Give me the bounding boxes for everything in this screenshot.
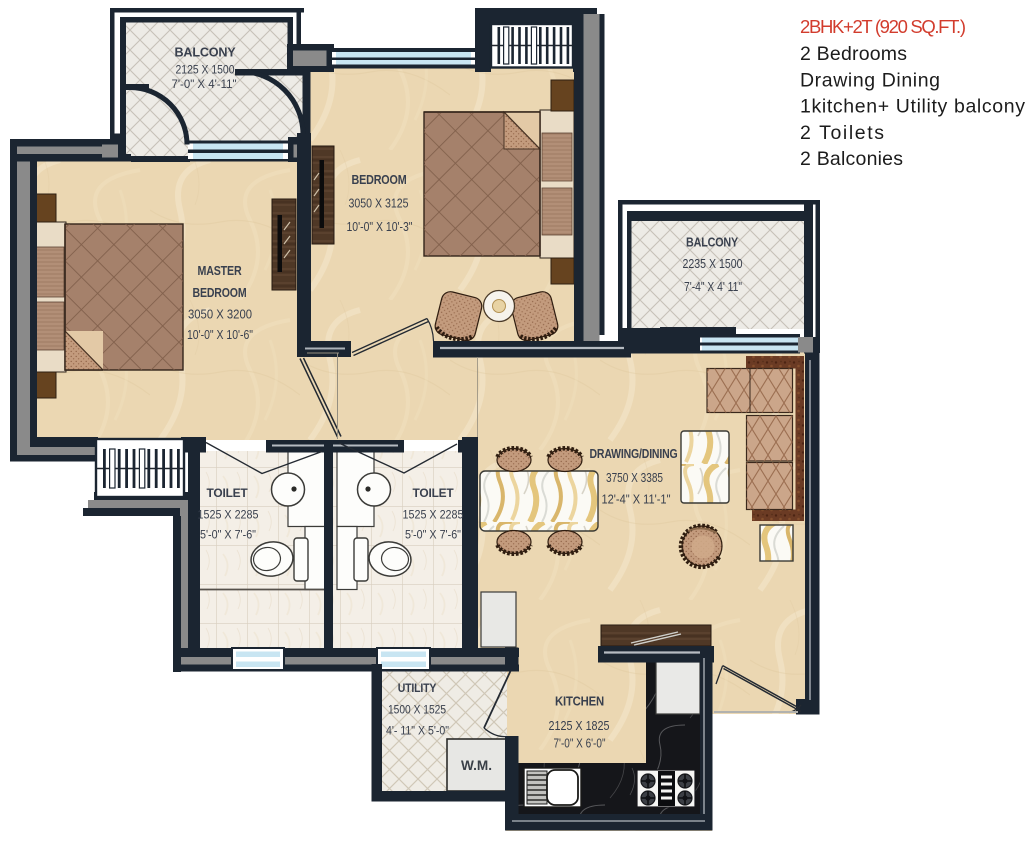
svg-text:BEDROOM: BEDROOM [193,285,247,300]
svg-text:2 Bedrooms: 2 Bedrooms [800,43,907,65]
svg-text:5'-0" X 7'-6": 5'-0" X 7'-6" [200,528,256,542]
svg-text:2235 X 1500: 2235 X 1500 [683,257,743,271]
svg-text:TOILET: TOILET [207,486,249,500]
svg-text:W.M.: W.M. [461,758,492,773]
svg-text:DRAWING/DINING: DRAWING/DINING [590,447,678,461]
svg-text:BALCONY: BALCONY [686,235,738,250]
svg-text:BALCONY: BALCONY [175,45,236,60]
svg-text:2 Balconies: 2 Balconies [800,148,903,170]
svg-text:1525 X 2285: 1525 X 2285 [403,508,464,522]
svg-text:4'- 11" X 5'-0": 4'- 11" X 5'-0" [386,724,449,738]
svg-text:12'-4" X 11'-1": 12'-4" X 11'-1" [602,493,671,507]
svg-text:Drawing Dining: Drawing Dining [800,70,940,92]
svg-text:3750 X 3385: 3750 X 3385 [606,471,663,485]
svg-text:10'-0" X 10'-3": 10'-0" X 10'-3" [347,220,413,234]
svg-text:MASTER: MASTER [198,263,243,278]
svg-text:7'-0" X 4'-11": 7'-0" X 4'-11" [172,77,237,91]
svg-text:1525 X 2285: 1525 X 2285 [198,508,259,522]
svg-text:5'-0" X 7'-6": 5'-0" X 7'-6" [405,528,461,542]
svg-text:UTILITY: UTILITY [398,681,437,695]
svg-text:3050 X 3200: 3050 X 3200 [188,308,252,322]
svg-text:TOILET: TOILET [413,486,455,500]
svg-text:2BHK+2T (920 SQ.FT.): 2BHK+2T (920 SQ.FT.) [800,16,966,37]
svg-text:1kitchen+ Utility balcony: 1kitchen+ Utility balcony [800,96,1025,118]
svg-text:KITCHEN: KITCHEN [555,695,604,709]
svg-text:1500 X 1525: 1500 X 1525 [388,703,446,717]
svg-text:2125 X 1825: 2125 X 1825 [549,719,610,733]
svg-text:2125 X 1500: 2125 X 1500 [176,63,235,77]
svg-text:10'-0" X 10'-6": 10'-0" X 10'-6" [187,328,253,342]
svg-text:2 Toilets: 2 Toilets [800,122,884,144]
svg-text:7'-0" X 6'-0": 7'-0" X 6'-0" [554,737,606,751]
svg-text:3050 X 3125: 3050 X 3125 [349,197,409,211]
svg-text:BEDROOM: BEDROOM [352,172,407,187]
svg-text:7'-4" X 4' 11": 7'-4" X 4' 11" [684,280,742,294]
